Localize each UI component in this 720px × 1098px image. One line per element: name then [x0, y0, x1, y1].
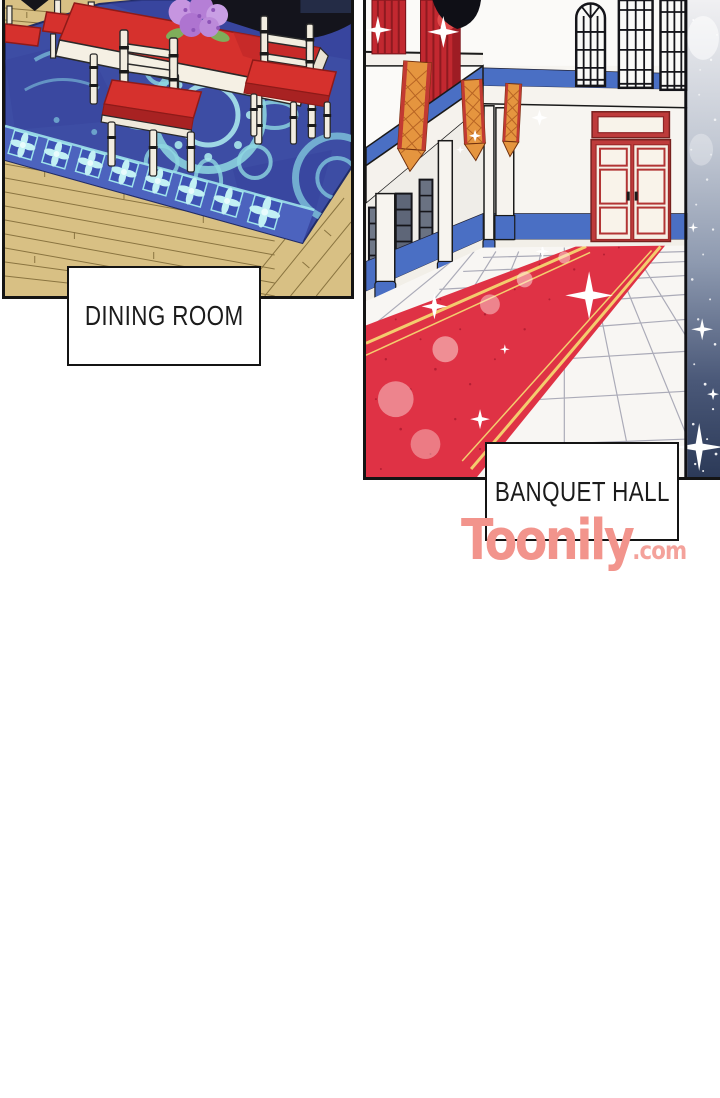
door-handle [627, 192, 630, 201]
dining-room-panel [2, 0, 354, 299]
toonily-suffix: .com [632, 536, 686, 565]
arched-window [576, 3, 605, 85]
banquet-hall-caption: BANQUET HALL [495, 476, 670, 508]
door-handle [635, 192, 638, 201]
column [375, 194, 396, 304]
banquet-hall-panel [363, 0, 720, 480]
toonily-brand: Toonily [461, 508, 632, 573]
dining-room-caption: DINING ROOM [85, 300, 244, 332]
dining-room-illustration [5, 0, 351, 296]
banquet-hall-illustration [366, 0, 720, 477]
webtoon-page: DINING ROOM BANQUET HALL Toonily.com [0, 0, 720, 1098]
tall-window [661, 0, 688, 90]
dining-room-caption-box: DINING ROOM [67, 266, 261, 366]
toonily-watermark: Toonily.com [461, 508, 686, 573]
banquet-door [591, 112, 670, 242]
tall-window [619, 0, 653, 88]
column [437, 141, 453, 280]
panel-inner-border [684, 0, 687, 477]
